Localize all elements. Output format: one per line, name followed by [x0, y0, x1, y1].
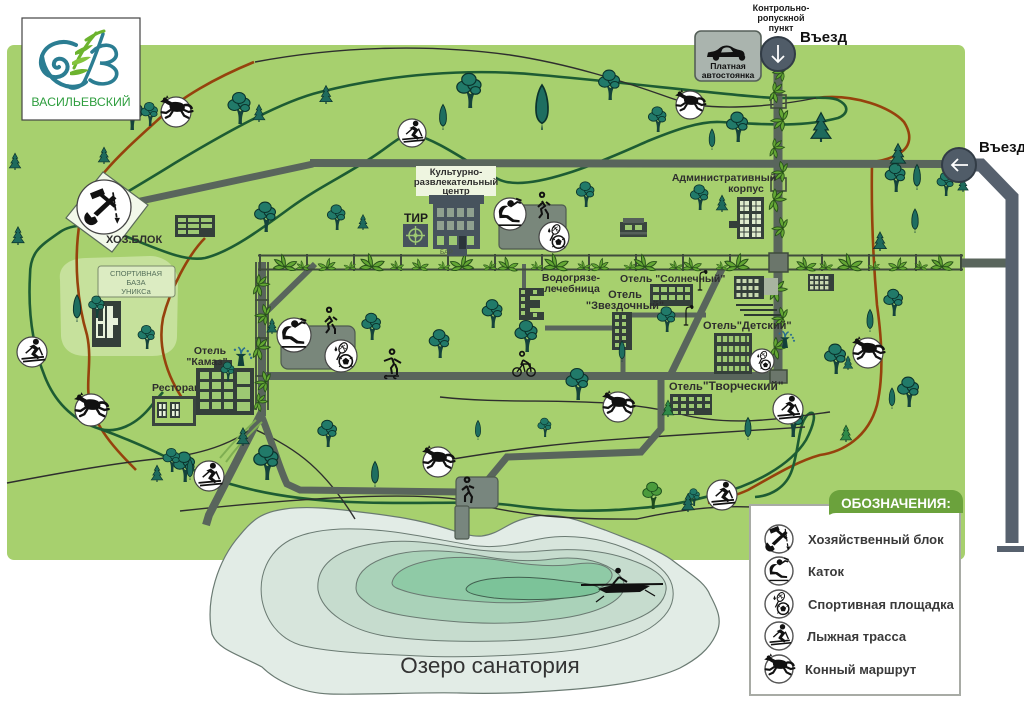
svg-text:ВАСИЛЬЕВСКИЙ: ВАСИЛЬЕВСКИЙ	[31, 94, 130, 109]
svg-text:корпус: корпус	[728, 183, 764, 195]
svg-text:ТИР: ТИР	[404, 211, 428, 225]
svg-text:Спортивная площадка: Спортивная площадка	[808, 597, 955, 612]
svg-text:БАЗА: БАЗА	[126, 278, 145, 287]
svg-text:БАР: БАР	[440, 249, 453, 256]
svg-text:Контрольно-: Контрольно-	[753, 3, 810, 13]
svg-text:"Камаз": "Камаз"	[186, 356, 227, 368]
svg-text:Въезд: Въезд	[800, 29, 848, 46]
svg-text:УНИКСа: УНИКСа	[121, 287, 151, 296]
svg-text:ОБОЗНАЧЕНИЯ:: ОБОЗНАЧЕНИЯ:	[841, 496, 951, 511]
svg-text:"Звездочный": "Звездочный"	[586, 300, 664, 312]
svg-text:Отель"Детский": Отель"Детский"	[703, 320, 792, 332]
svg-text:Конный маршрут: Конный маршрут	[805, 662, 916, 677]
svg-text:Ресторан: Ресторан	[152, 382, 200, 394]
svg-text:СПОРТИВНАЯ: СПОРТИВНАЯ	[110, 269, 162, 278]
svg-text:ропускной: ропускной	[757, 13, 804, 23]
svg-text:Хозяйственный блок: Хозяйственный блок	[808, 532, 944, 547]
svg-text:Въезд: Въезд	[979, 139, 1024, 156]
svg-text:лечебница: лечебница	[544, 283, 600, 295]
svg-text:Каток: Каток	[808, 564, 844, 579]
svg-text:Озеро санатория: Озеро санатория	[400, 653, 579, 678]
svg-text:Отель "Солнечный": Отель "Солнечный"	[620, 273, 725, 285]
svg-text:Лыжная трасса: Лыжная трасса	[807, 629, 907, 644]
svg-text:Отель"Творческий": Отель"Творческий"	[669, 379, 784, 393]
svg-text:пункт: пункт	[769, 23, 794, 33]
svg-text:ХОЗ.БЛОК: ХОЗ.БЛОК	[106, 234, 162, 246]
svg-text:автостоянка: автостоянка	[702, 70, 755, 80]
